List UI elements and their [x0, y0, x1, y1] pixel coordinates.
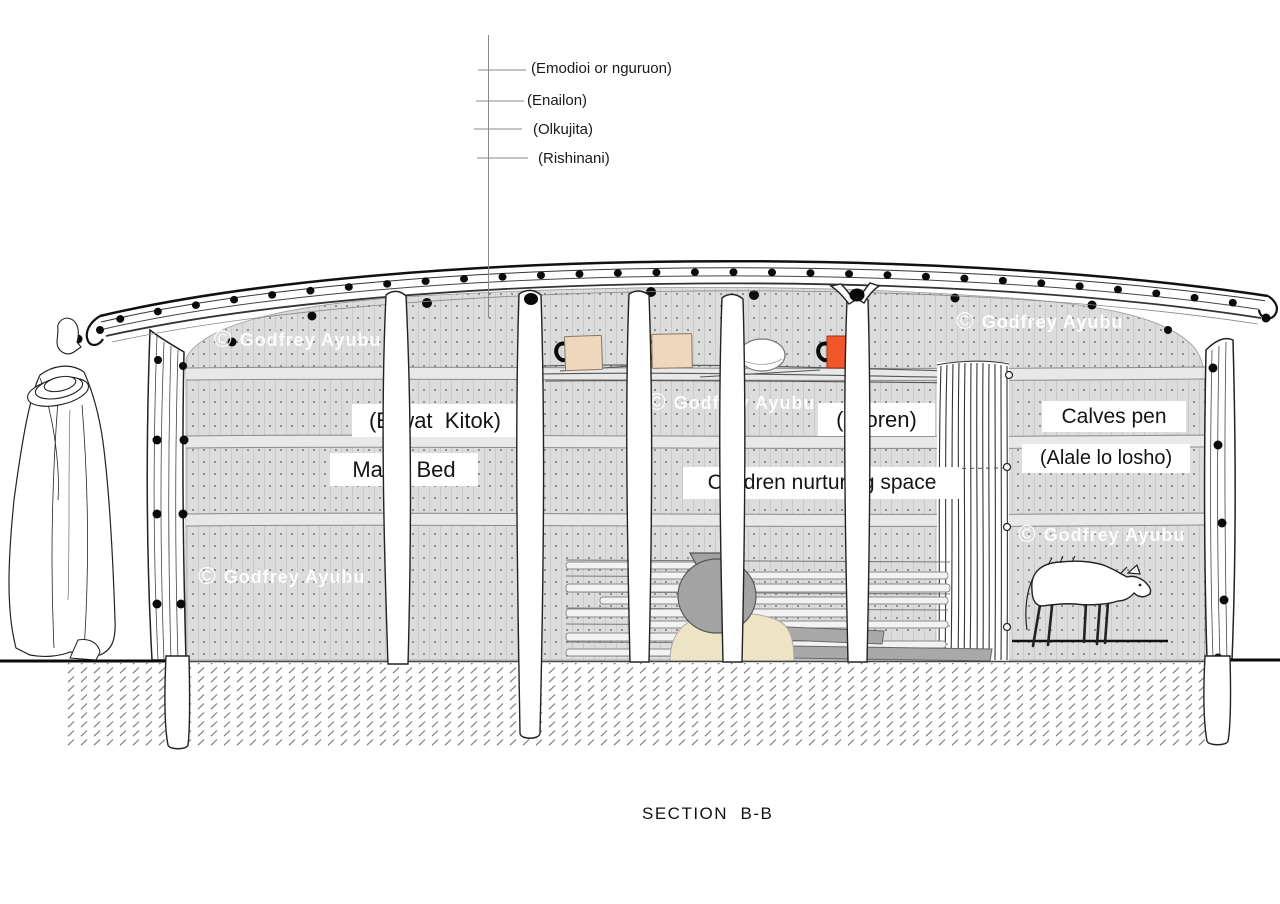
section-title: SECTION B-B	[642, 804, 773, 824]
label-calves-pen-en: Calves pen	[1042, 401, 1186, 432]
ground-hatch	[62, 663, 1205, 747]
copyright-icon: ©	[214, 328, 233, 352]
right-wall	[1205, 339, 1236, 663]
gourd	[739, 339, 785, 371]
roof-layer-label-1: (Emodioi or nguruon)	[531, 60, 672, 77]
orange-container	[827, 336, 866, 368]
watermark-2: © Godfrey Ayubu	[956, 310, 1123, 334]
copyright-icon: ©	[648, 391, 667, 415]
copyright-icon: ©	[1018, 523, 1037, 547]
watermark-4: © Godfrey Ayubu	[1018, 523, 1185, 547]
woman-figure	[9, 318, 115, 660]
watermark-5: © Godfrey Ayubu	[198, 565, 365, 589]
section-drawing: (Emodioi or nguruon) (Enailon) (Olkujita…	[0, 0, 1280, 904]
roof-layer-label-2: (Enailon)	[527, 92, 587, 109]
copyright-icon: ©	[198, 565, 217, 589]
ground	[0, 660, 1280, 747]
copyright-icon: ©	[956, 310, 975, 334]
watermark-3: © Godfrey Ayubu	[648, 391, 815, 415]
watermark-1: © Godfrey Ayubu	[214, 328, 381, 352]
roof-layer-label-3: (Olkujita)	[533, 121, 593, 138]
label-children-space-maa: (Oloren)	[818, 403, 935, 436]
label-big-bed-maa: (Erwat Kitok)	[352, 404, 518, 437]
label-children-space-en: Children nurturing space	[683, 467, 961, 499]
roof-layer-label-4: (Rishinani)	[538, 150, 610, 167]
milk-container-1	[564, 335, 602, 370]
left-wall	[147, 330, 188, 660]
milk-container-2	[652, 334, 693, 369]
label-calves-pen-maa: (Alale lo losho)	[1022, 444, 1190, 473]
label-big-bed-en: Man's Bed	[330, 453, 478, 486]
